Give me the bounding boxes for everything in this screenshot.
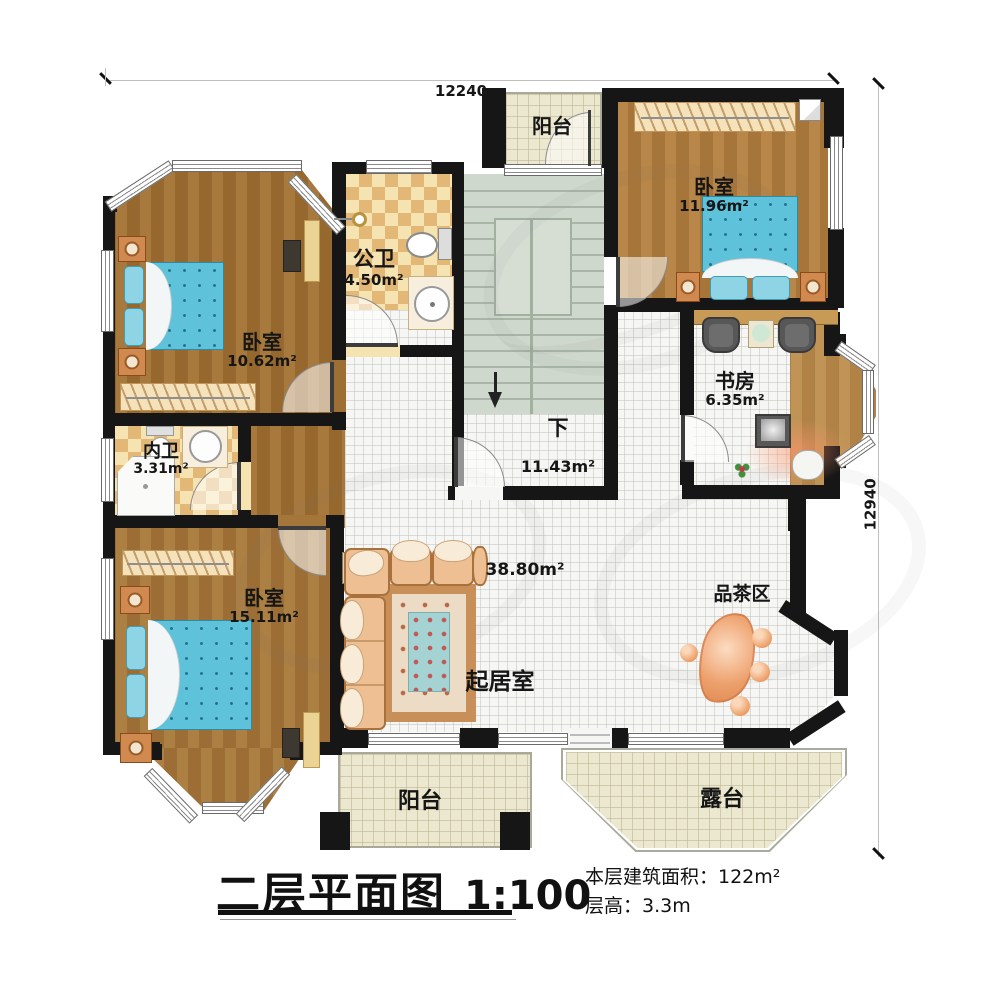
pillow: [124, 308, 144, 346]
living-area-label: 38.80m²: [465, 561, 585, 580]
wall-segment: [332, 345, 346, 357]
nightstand: [120, 586, 150, 614]
wall-segment: [103, 515, 278, 528]
wall-segment: [332, 196, 346, 212]
pillow: [124, 266, 144, 304]
room-label-living: 起居室: [450, 670, 550, 696]
nightstand: [676, 272, 700, 302]
wall-segment: [724, 728, 790, 748]
wall-segment: [503, 486, 618, 500]
door-leaf: [346, 343, 398, 347]
door-leaf: [681, 415, 685, 462]
tv: [282, 728, 300, 758]
chair: [702, 317, 740, 353]
wall-segment: [790, 531, 806, 615]
door-gap: [332, 360, 346, 412]
window: [368, 733, 460, 745]
wall-segment: [332, 162, 366, 174]
title-underline-thick: [218, 910, 512, 915]
computer-screen: [761, 419, 785, 441]
window: [628, 733, 724, 745]
room-label-bedroom-bottom-left: 卧室15.11m²: [214, 587, 314, 626]
wall-segment: [612, 88, 828, 102]
stool: [750, 662, 770, 682]
wall-segment: [400, 345, 464, 357]
plant-leaves: [752, 324, 770, 342]
wall-segment: [788, 499, 806, 531]
door-leaf: [278, 526, 326, 530]
sofa-cushion: [392, 540, 430, 562]
ceiling-light: [352, 212, 367, 227]
threshold-line: [570, 734, 610, 736]
wall-segment: [604, 162, 618, 257]
sofa-cushion: [340, 644, 364, 684]
nightstand: [120, 733, 152, 763]
wall-segment: [500, 812, 530, 850]
wall-segment: [448, 486, 455, 500]
dim-label-right: 12940: [863, 473, 880, 535]
wall-segment: [460, 728, 498, 748]
nightstand: [800, 272, 826, 302]
nightstand: [118, 348, 146, 376]
window: [498, 733, 568, 745]
window: [366, 160, 432, 174]
wall-segment: [320, 812, 350, 850]
wall-segment: [682, 485, 838, 499]
wardrobe: [122, 550, 234, 576]
door-leaf: [616, 257, 620, 307]
window: [101, 250, 114, 332]
room-label-bedroom-top-right: 卧室11.96m²: [654, 176, 774, 215]
wall-segment: [680, 460, 694, 485]
dim-ext: [105, 68, 106, 86]
sofa-seam: [346, 684, 384, 686]
door-leaf: [454, 437, 458, 487]
pillow: [710, 276, 748, 300]
dim-line-right: [878, 85, 879, 857]
wall-segment: [828, 228, 844, 308]
title-underline-thin: [220, 919, 516, 920]
tv: [283, 240, 301, 272]
door-opening: [568, 728, 612, 748]
room-label-terrace: 露台: [672, 788, 772, 813]
room-label-balcony-bottom: 阳台: [370, 790, 470, 815]
room-label-balcony-top: 阳台: [502, 115, 602, 137]
door-gap: [455, 486, 503, 500]
toilet-tank: [438, 228, 452, 260]
corner-window: [799, 99, 821, 121]
dim-line-top: [105, 80, 838, 81]
sofa-cushion: [340, 600, 364, 640]
room-label-bedroom-left: 卧室10.62m²: [212, 331, 312, 370]
nightstand: [118, 236, 146, 262]
title-info: 本层建筑面积：122m² 层高：3.3m: [585, 863, 780, 922]
wall-segment: [612, 728, 628, 748]
room-label-study: 书房6.35m²: [685, 370, 785, 409]
pillow: [126, 674, 146, 718]
chair: [778, 317, 816, 353]
dim-tick: [827, 72, 840, 85]
down-arrow-icon: [488, 392, 502, 408]
stool: [752, 628, 772, 648]
dim-label-top: 12240: [425, 83, 497, 100]
wall-segment: [334, 728, 368, 748]
toilet-tank: [146, 426, 174, 436]
window: [172, 160, 302, 172]
wall-segment: [238, 413, 251, 462]
room-label-public-bath: 公卫4.50m²: [324, 248, 424, 288]
wall-segment: [432, 162, 464, 174]
stool: [680, 644, 698, 662]
stool: [730, 696, 750, 716]
pillow: [126, 626, 146, 670]
flower: [733, 460, 751, 478]
pillow: [752, 276, 790, 300]
floor-height-text: 层高：3.3m: [585, 892, 780, 921]
wall-segment: [103, 413, 343, 426]
light-cord: [334, 218, 352, 220]
room-label-inner-bath: 内卫3.31m²: [111, 442, 211, 478]
wardrobe: [120, 383, 256, 411]
tv-cabinet: [304, 220, 320, 282]
door-leaf: [330, 362, 334, 412]
faucet: [430, 302, 435, 307]
stairs-down-label: 下: [528, 417, 588, 441]
shower-drain: [143, 484, 148, 489]
window: [862, 370, 874, 434]
tv-cabinet: [303, 712, 320, 768]
wall-segment: [834, 630, 848, 696]
window: [101, 558, 114, 640]
sofa-cushion: [434, 540, 472, 562]
sofa-cushion: [340, 688, 364, 728]
window: [830, 136, 843, 230]
wardrobe: [634, 102, 796, 132]
stool-white: [792, 450, 824, 480]
down-arrow-stem: [494, 372, 497, 394]
threshold-line: [570, 742, 610, 744]
stairs-area-label: 11.43m²: [508, 458, 608, 476]
door-leaf: [237, 462, 241, 510]
sofa-seam: [346, 640, 384, 642]
rug-center: [408, 612, 450, 692]
wall-segment: [828, 102, 844, 138]
room-label-tea-area: 品茶区: [692, 584, 792, 605]
floor-plan-canvas: 12240 12940: [0, 0, 1000, 990]
floor-area-text: 本层建筑面积：122m²: [585, 863, 780, 892]
